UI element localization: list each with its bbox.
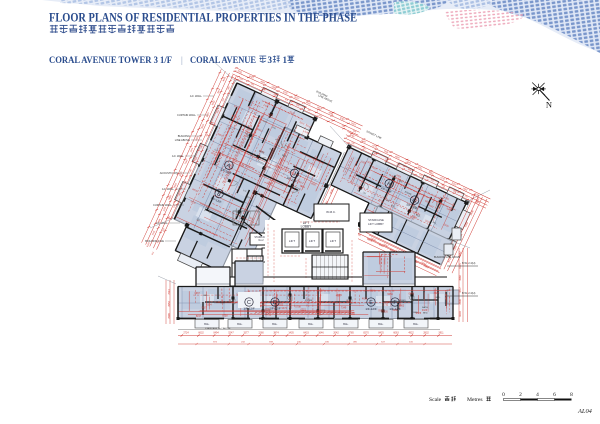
- svg-text:LINE ABOVE: LINE ABOVE: [175, 138, 191, 142]
- svg-text:LIFT: LIFT: [330, 239, 336, 243]
- svg-text:6792: 6792: [282, 91, 288, 95]
- svg-text:4685: 4685: [260, 81, 266, 85]
- svg-text:354: 354: [352, 130, 357, 134]
- svg-text:2832: 2832: [423, 332, 429, 335]
- svg-text:Metres: Metres: [467, 397, 483, 403]
- svg-text:7719: 7719: [328, 312, 334, 315]
- svg-text:LIFT: LIFT: [309, 239, 315, 243]
- svg-text:8: 8: [570, 392, 573, 398]
- svg-text:2724: 2724: [183, 332, 189, 335]
- svg-text:N: N: [546, 100, 552, 110]
- svg-text:BAL.: BAL.: [204, 323, 210, 326]
- svg-text:A.F. WALL: A.F. WALL: [162, 187, 175, 191]
- svg-text:1/F-12/F: 1/F-12/F: [243, 307, 255, 311]
- svg-text:BED.: BED.: [203, 295, 208, 297]
- svg-text:7349: 7349: [341, 307, 347, 310]
- svg-text:BAL.: BAL.: [308, 323, 314, 326]
- svg-text:106: 106: [409, 341, 413, 343]
- svg-text:8612: 8612: [317, 107, 323, 111]
- svg-text:BATH: BATH: [422, 306, 428, 309]
- svg-text:8425: 8425: [378, 332, 384, 335]
- svg-text:BAL.: BAL.: [343, 323, 349, 326]
- svg-text:CURTAIN WALL: CURTAIN WALL: [153, 203, 173, 207]
- svg-text:1/F-12/F: 1/F-12/F: [389, 307, 401, 311]
- svg-text:9351: 9351: [417, 166, 423, 170]
- svg-text:BAL.: BAL.: [378, 323, 384, 326]
- svg-text:BAL.: BAL.: [272, 323, 278, 326]
- svg-text:6691: 6691: [237, 70, 243, 74]
- svg-text:6063: 6063: [393, 332, 399, 335]
- svg-text:0397: 0397: [318, 290, 324, 293]
- svg-text:4945: 4945: [394, 156, 400, 160]
- svg-text:CORAL AVENUE TOWER 3 1/F: CORAL AVENUE TOWER 3 1/F: [49, 56, 172, 66]
- svg-text:8203: 8203: [459, 311, 462, 317]
- svg-text:1/F-12/F: 1/F-12/F: [365, 307, 377, 311]
- svg-text:Scale: Scale: [429, 397, 442, 403]
- svg-text:0788: 0788: [349, 134, 355, 138]
- svg-text:0785: 0785: [348, 332, 354, 335]
- svg-text:974: 974: [213, 341, 217, 343]
- svg-text:LIV.: LIV.: [336, 302, 340, 304]
- svg-text:7722: 7722: [266, 314, 272, 317]
- svg-text:3103: 3103: [451, 183, 457, 187]
- svg-text:8270: 8270: [363, 332, 369, 335]
- svg-text:LOBBY: LOBBY: [301, 225, 313, 229]
- svg-text:9927: 9927: [202, 307, 208, 310]
- svg-text:6283: 6283: [339, 117, 345, 121]
- svg-text:2950: 2950: [168, 301, 171, 307]
- svg-text:547: 547: [381, 341, 385, 343]
- svg-text:BUILDING: BUILDING: [178, 134, 190, 138]
- svg-text:3569: 3569: [459, 275, 462, 281]
- svg-text:No.2: No.2: [258, 239, 264, 242]
- svg-text:757: 757: [330, 120, 335, 124]
- svg-text:A.F. WALL: A.F. WALL: [190, 94, 203, 98]
- svg-text:232: 232: [241, 341, 245, 343]
- svg-text:7323: 7323: [406, 161, 412, 165]
- svg-text:4617: 4617: [336, 295, 342, 298]
- svg-text:DIN.: DIN.: [221, 303, 226, 305]
- svg-text:0113: 0113: [346, 300, 352, 303]
- svg-text:9374: 9374: [282, 307, 288, 310]
- svg-text:3911: 3911: [438, 332, 444, 335]
- svg-text:186: 186: [325, 341, 329, 343]
- svg-text:0494: 0494: [213, 332, 219, 335]
- svg-text:0521: 0521: [301, 308, 307, 311]
- svg-text:7243: 7243: [168, 289, 171, 295]
- svg-text:213: 213: [318, 115, 323, 119]
- svg-text:B.W. 2.4(H): B.W. 2.4(H): [462, 291, 476, 295]
- svg-text:2676: 2676: [434, 292, 440, 295]
- svg-text:4954: 4954: [385, 301, 391, 304]
- svg-text:FLOOR PLANS OF RESIDENTIAL PRO: FLOOR PLANS OF RESIDENTIAL PROPERTIES IN…: [49, 11, 357, 25]
- svg-text:1149: 1149: [361, 140, 367, 144]
- svg-text:BED.: BED.: [423, 313, 428, 315]
- svg-text:1/F-12/F: 1/F-12/F: [269, 307, 281, 311]
- svg-text:6433: 6433: [303, 332, 309, 335]
- svg-text:1582: 1582: [462, 188, 468, 192]
- svg-text:4446: 4446: [305, 102, 311, 106]
- svg-text:7938: 7938: [383, 150, 389, 154]
- svg-text:4922: 4922: [408, 332, 414, 335]
- svg-text:W.M.C.: W.M.C.: [326, 210, 336, 214]
- svg-text:1435: 1435: [288, 332, 294, 335]
- svg-text:1646: 1646: [318, 332, 324, 335]
- svg-text:0737: 0737: [440, 177, 446, 181]
- svg-text:STREET LINE: STREET LINE: [366, 129, 383, 140]
- svg-text:2599: 2599: [168, 313, 171, 319]
- svg-text:654: 654: [152, 251, 156, 256]
- svg-text:3: 3: [268, 55, 273, 65]
- svg-text:5247: 5247: [228, 332, 234, 335]
- svg-text:8227: 8227: [294, 97, 300, 101]
- svg-text:2: 2: [519, 392, 522, 398]
- svg-text:LIFT: LIFT: [289, 239, 295, 243]
- svg-text:6632: 6632: [198, 332, 204, 335]
- svg-text:D: D: [273, 300, 277, 306]
- svg-text:4: 4: [536, 392, 539, 398]
- svg-text:2042: 2042: [333, 332, 339, 335]
- svg-text:M.BED.: M.BED.: [399, 300, 407, 302]
- svg-text:AL04: AL04: [577, 408, 593, 415]
- svg-text:C: C: [247, 300, 251, 306]
- svg-text:3874: 3874: [273, 332, 279, 335]
- svg-text:BUILDING LINE: BUILDING LINE: [145, 239, 164, 243]
- svg-text:BUILDING LINE ABOVE: BUILDING LINE ABOVE: [434, 256, 460, 259]
- svg-text:0429: 0429: [422, 309, 428, 312]
- svg-text:5157: 5157: [196, 315, 202, 318]
- svg-text:LIFT LOBBY: LIFT LOBBY: [368, 222, 384, 226]
- svg-text:939: 939: [269, 341, 273, 343]
- svg-text:1459: 1459: [349, 313, 355, 316]
- svg-text:6: 6: [553, 392, 556, 398]
- svg-text:085: 085: [353, 341, 357, 343]
- svg-text:0: 0: [502, 392, 505, 398]
- svg-text:B.W. 2.4(H): B.W. 2.4(H): [462, 261, 476, 265]
- svg-text:8758: 8758: [222, 314, 228, 317]
- svg-text:CURTAIN WALL: CURTAIN WALL: [177, 113, 197, 117]
- svg-text:CORAL AVENUE: CORAL AVENUE: [190, 56, 256, 66]
- svg-text:1: 1: [283, 55, 288, 65]
- svg-text:430: 430: [297, 341, 301, 343]
- svg-text:6334: 6334: [206, 303, 212, 306]
- svg-text:0688: 0688: [271, 86, 277, 90]
- svg-text:5815: 5815: [351, 123, 357, 127]
- svg-text:STAIRCASE No.2 ABOVE: STAIRCASE No.2 ABOVE: [205, 327, 231, 330]
- svg-text:A.F. WALL: A.F. WALL: [172, 154, 185, 158]
- svg-text:0493: 0493: [409, 292, 415, 295]
- svg-text:BAL.: BAL.: [413, 323, 419, 326]
- svg-text:BED.: BED.: [435, 297, 440, 299]
- svg-text:1280: 1280: [258, 332, 264, 335]
- svg-text:STORE: STORE: [305, 300, 313, 302]
- svg-text:ACOUSTIC FIN: ACOUSTIC FIN: [160, 171, 178, 175]
- svg-text:BED.: BED.: [413, 312, 418, 314]
- svg-text:1577: 1577: [243, 332, 249, 335]
- svg-text:2405: 2405: [382, 310, 388, 313]
- svg-text:7808: 7808: [459, 299, 462, 305]
- svg-text:|: |: [181, 55, 183, 65]
- svg-text:6967: 6967: [195, 292, 201, 295]
- svg-text:8783: 8783: [328, 112, 334, 116]
- svg-text:0916: 0916: [369, 289, 375, 292]
- svg-text:E: E: [369, 300, 373, 306]
- svg-text:9054: 9054: [387, 293, 393, 296]
- svg-text:BAL.: BAL.: [237, 323, 243, 326]
